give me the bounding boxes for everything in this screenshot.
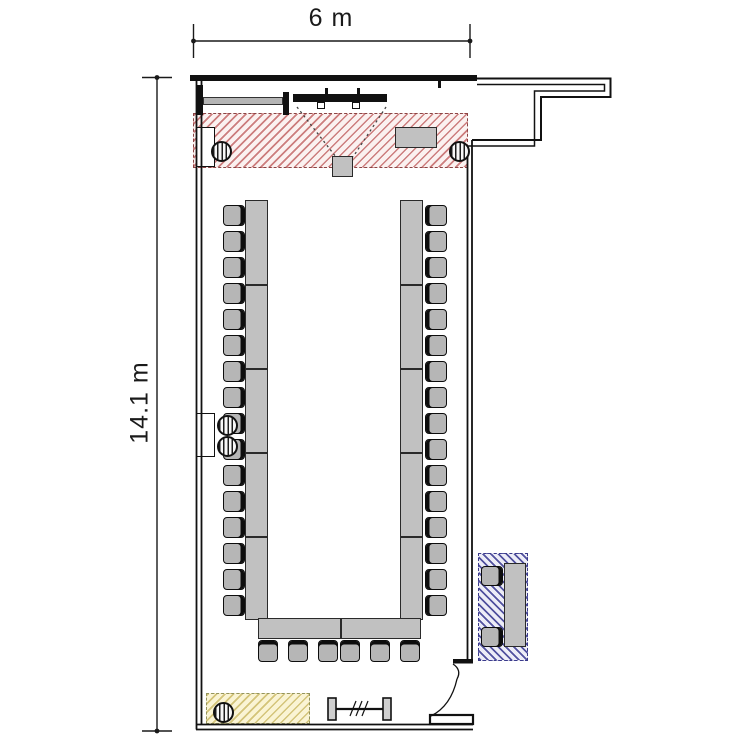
table-seam (401, 452, 422, 454)
chair (425, 517, 447, 538)
conference-table-left (245, 200, 268, 620)
chair (288, 640, 308, 662)
screen-bracket-tick (357, 88, 360, 94)
chair (223, 569, 245, 590)
chair (258, 640, 278, 662)
podium (332, 156, 353, 177)
projection-screen (293, 94, 387, 102)
chair (223, 361, 245, 382)
chair (400, 640, 420, 662)
chair (425, 387, 447, 408)
conference-table-right (400, 200, 423, 620)
chair (425, 257, 447, 278)
chair (223, 257, 245, 278)
table-seam (401, 284, 422, 286)
wall-joint-tick (438, 81, 441, 88)
pillar (217, 436, 238, 457)
door-jamb (453, 659, 473, 664)
height-dimension-label: 14.1 m (126, 353, 155, 453)
corridor-wall-inner (468, 85, 605, 147)
floor-plan-canvas: 6 m 14.1 m (0, 0, 750, 750)
chair (425, 283, 447, 304)
top-wall (190, 75, 477, 81)
chair (425, 543, 447, 564)
chair (425, 205, 447, 226)
chair (223, 309, 245, 330)
projection-cone-lines (297, 107, 386, 157)
chair (340, 640, 360, 662)
chair (223, 335, 245, 356)
pillar (449, 141, 470, 162)
chair (223, 543, 245, 564)
chair (223, 283, 245, 304)
dimension-end-dot (155, 75, 160, 80)
bottom-wall (196, 725, 473, 730)
lounge-chair (481, 566, 503, 586)
door-swing-arc-small (453, 664, 459, 679)
table-seam (340, 619, 342, 638)
pillar (211, 141, 232, 162)
chair (425, 595, 447, 616)
partition-symbol (328, 698, 391, 720)
chair (425, 309, 447, 330)
corridor-wall-outer (472, 79, 611, 141)
chair (318, 640, 338, 662)
stage-table (395, 127, 437, 148)
chair (425, 439, 447, 460)
table-seam (246, 452, 267, 454)
screen-bracket-tick (325, 88, 328, 94)
chair (223, 205, 245, 226)
width-dimension-label: 6 m (288, 4, 374, 33)
right-wall (468, 140, 473, 661)
chair (223, 491, 245, 512)
table-seam (246, 284, 267, 286)
chair (223, 465, 245, 486)
pillar (217, 415, 238, 436)
table-seam (401, 536, 422, 538)
table-seam (401, 368, 422, 370)
dimension-end-dot (468, 39, 473, 44)
chair (223, 595, 245, 616)
screen-foot-right (352, 102, 360, 109)
chair (223, 517, 245, 538)
chair (425, 335, 447, 356)
chair (425, 361, 447, 382)
chair (425, 413, 447, 434)
dimension-end-dot (155, 729, 160, 734)
chair (425, 491, 447, 512)
screen-foot-left (317, 102, 325, 109)
chair (425, 465, 447, 486)
door-swing-arc (431, 679, 457, 716)
whiteboard-post-right (283, 92, 289, 115)
chair (370, 640, 390, 662)
chair (223, 387, 245, 408)
chair (223, 231, 245, 252)
chair (425, 569, 447, 590)
table-seam (246, 368, 267, 370)
dimension-end-dot (191, 39, 196, 44)
table-seam (246, 536, 267, 538)
whiteboard (203, 97, 283, 105)
door-leaf (430, 715, 473, 724)
lounge-table (504, 563, 526, 647)
pillar (213, 702, 234, 723)
left-wall (197, 79, 202, 730)
chair (425, 231, 447, 252)
lounge-chair (481, 627, 503, 647)
